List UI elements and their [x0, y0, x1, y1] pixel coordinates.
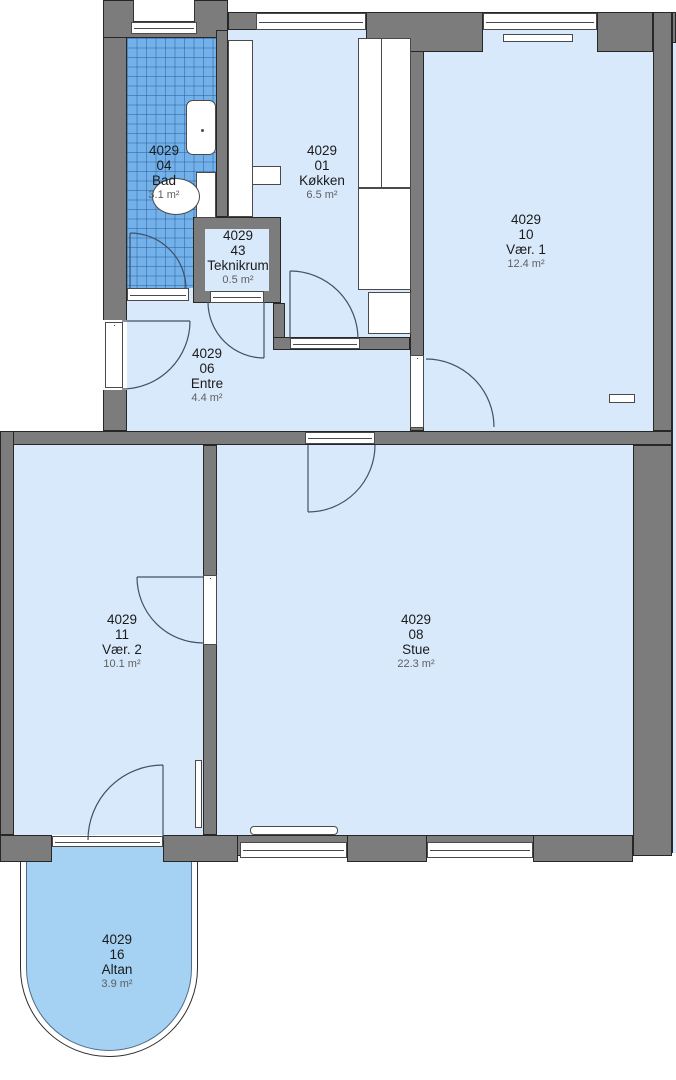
room-unit: 4029	[252, 143, 392, 158]
room-label-entre: 4029 06 Entre 4.4 m²	[137, 346, 277, 405]
vaer1-door-swing	[426, 359, 494, 427]
room-number: 08	[346, 627, 486, 642]
room-area: 10.1 m²	[52, 658, 192, 671]
floor-plan: 4029 04 Bad 3.1 m² 4029 01 Køkken 6.5 m²…	[0, 0, 676, 1080]
room-area: 12.4 m²	[456, 258, 596, 271]
room-number: 16	[47, 947, 187, 962]
room-number: 04	[94, 158, 234, 173]
room-area: 3.1 m²	[94, 189, 234, 202]
stue-door-swing	[308, 445, 375, 512]
room-label-bad: 4029 04 Bad 3.1 m²	[94, 143, 234, 202]
room-name: Vær. 1	[456, 242, 596, 257]
room-name: Entre	[137, 376, 277, 391]
room-unit: 4029	[137, 346, 277, 361]
room-unit: 4029	[456, 212, 596, 227]
room-area: 4.4 m²	[137, 392, 277, 405]
room-label-vaer1: 4029 10 Vær. 1 12.4 m²	[456, 212, 596, 271]
room-number: 11	[52, 627, 192, 642]
room-area: 3.9 m²	[47, 978, 187, 991]
room-name: Vær. 2	[52, 642, 192, 657]
room-number: 01	[252, 158, 392, 173]
balcony-door-swing	[88, 765, 163, 840]
room-label-vaer2: 4029 11 Vær. 2 10.1 m²	[52, 612, 192, 671]
room-label-teknikrum: 4029 43 Teknikrum 0.5 m²	[168, 228, 308, 287]
room-number: 10	[456, 227, 596, 242]
room-label-stue: 4029 08 Stue 22.3 m²	[346, 612, 486, 671]
room-unit: 4029	[52, 612, 192, 627]
room-name: Teknikrum	[168, 258, 308, 273]
room-number: 43	[168, 243, 308, 258]
room-unit: 4029	[94, 143, 234, 158]
room-name: Bad	[94, 173, 234, 188]
room-label-altan: 4029 16 Altan 3.9 m²	[47, 932, 187, 991]
room-unit: 4029	[47, 932, 187, 947]
room-name: Stue	[346, 642, 486, 657]
room-unit: 4029	[346, 612, 486, 627]
room-area: 22.3 m²	[346, 658, 486, 671]
room-unit: 4029	[168, 228, 308, 243]
room-number: 06	[137, 361, 277, 376]
room-name: Altan	[47, 962, 187, 977]
room-label-kokken: 4029 01 Køkken 6.5 m²	[252, 143, 392, 202]
room-name: Køkken	[252, 173, 392, 188]
room-area: 0.5 m²	[168, 274, 308, 287]
room-area: 6.5 m²	[252, 189, 392, 202]
